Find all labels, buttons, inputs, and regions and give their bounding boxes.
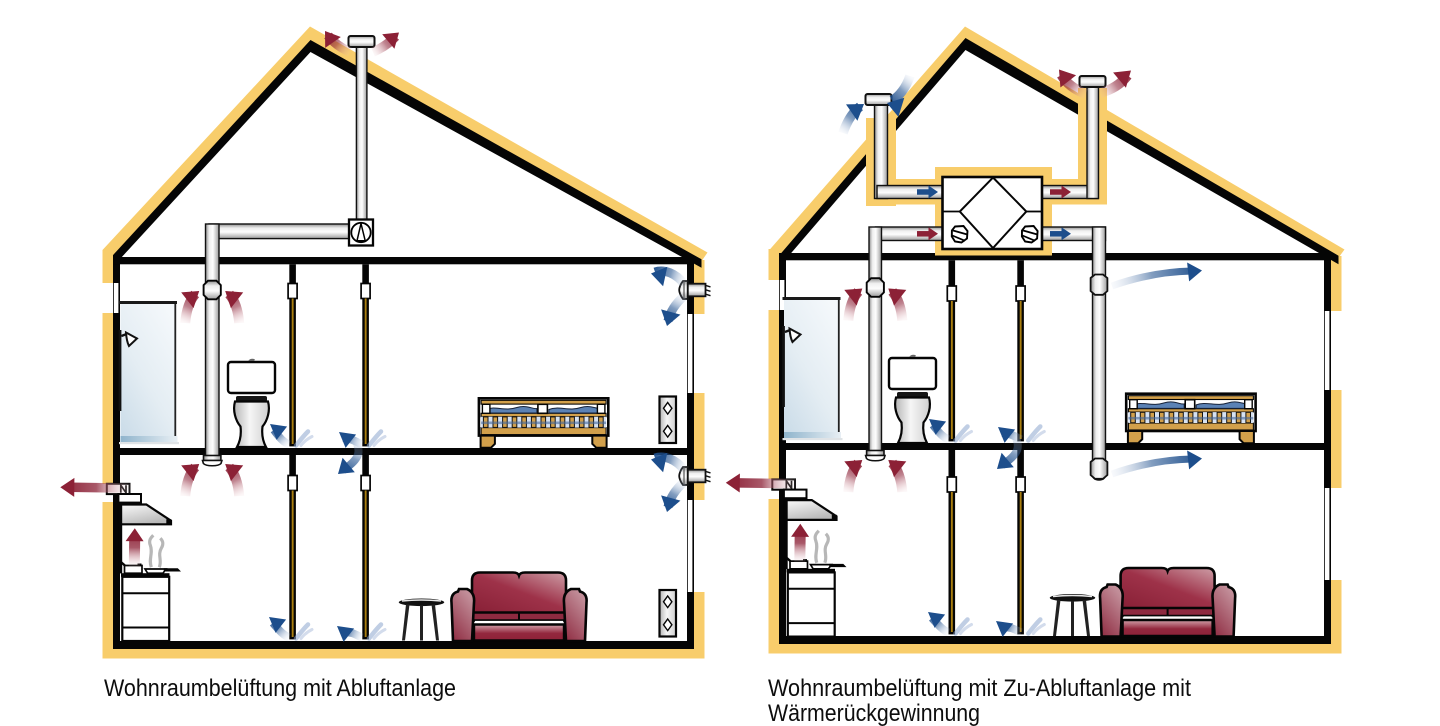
- svg-text:Wohnraumbelüftung mit Zu-Abluf: Wohnraumbelüftung mit Zu-Abluftanlage mi…: [768, 675, 1191, 702]
- svg-text:Wohnraumbelüftung mit Abluftan: Wohnraumbelüftung mit Abluftanlage: [104, 675, 456, 702]
- svg-text:Wärmerückgewinnung: Wärmerückgewinnung: [768, 700, 980, 726]
